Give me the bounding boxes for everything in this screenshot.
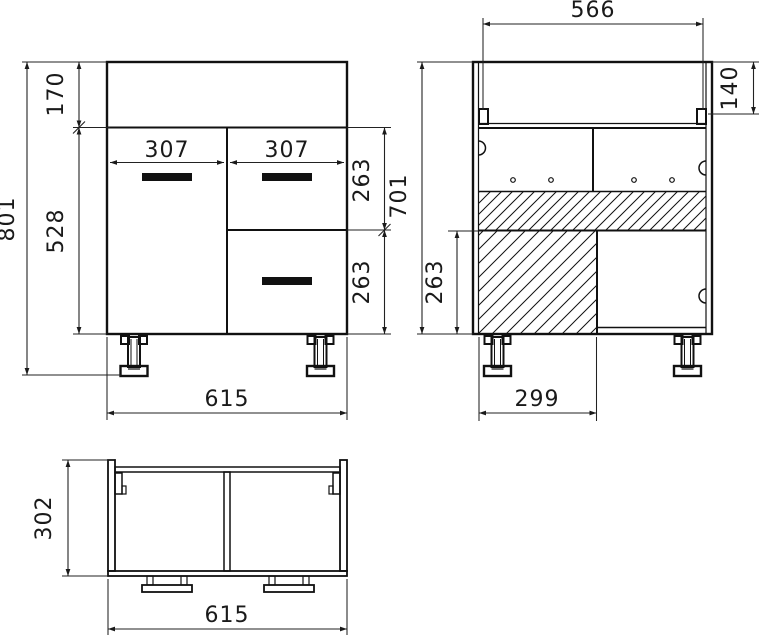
dim-label-recess-width: 299: [515, 387, 560, 412]
dim-label-door-height: 528: [44, 209, 69, 254]
dim-label-drawer-width: 307: [265, 138, 310, 163]
dim-label-top-rail: 140: [718, 66, 743, 111]
dim-label-recess-height: 263: [423, 260, 448, 305]
dim-label-front-width: 615: [205, 387, 250, 412]
hatched-shelf-band: [479, 192, 707, 231]
dim-label-top-drawer-height: 263: [350, 158, 375, 203]
door-handle: [142, 173, 192, 181]
drawing-canvas: 307 307 801 170 528 263: [0, 0, 762, 637]
hatched-recess-area: [479, 231, 598, 335]
bottom-drawer-handle: [262, 277, 312, 285]
dim-label-bottom-drawer-height: 263: [350, 260, 375, 305]
dim-label-overall-height: 801: [0, 197, 20, 242]
cabinet-technical-drawing: 307 307 801 170 528 263: [0, 0, 762, 637]
top-drawer-handle: [262, 173, 312, 181]
dim-label-top-section: 170: [44, 72, 69, 117]
dim-label-carcass-height: 701: [387, 174, 412, 219]
dim-label-door-width: 307: [145, 138, 190, 163]
dim-label-depth: 302: [32, 496, 57, 541]
dim-label-inner-width: 566: [571, 0, 616, 23]
dim-label-plan-width: 615: [205, 603, 250, 628]
